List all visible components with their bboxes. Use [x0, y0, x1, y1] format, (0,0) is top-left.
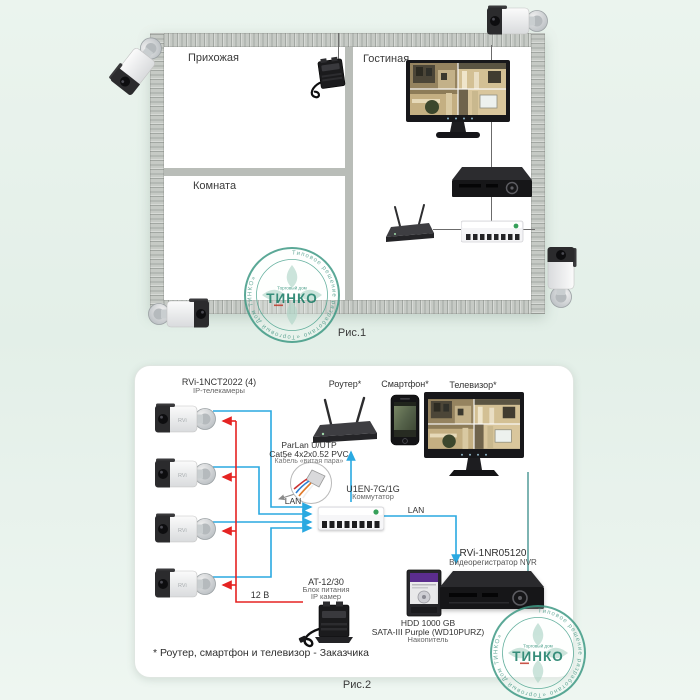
power-voltage-label: 12 В	[235, 590, 285, 601]
tinko-stamp: Типовое решение разработано «Торговый До…	[488, 603, 588, 700]
figure2-caption: Рис.2	[317, 679, 397, 692]
bullet-camera-icon	[484, 4, 548, 38]
hdd-icon	[406, 569, 442, 617]
hdd-sub-label: Накопитель	[368, 636, 488, 645]
nvr-sub-label: Видеорегистратор NVR	[433, 558, 553, 567]
tv-label: Телевизор*	[423, 380, 523, 391]
svg-text:RVi: RVi	[178, 528, 187, 534]
camera-bottom-right	[544, 244, 578, 308]
tv-icon	[424, 392, 524, 484]
figure2-panel: RVi RVi RVi RVi	[134, 365, 574, 678]
diagram-page: Прихожая Гостиная Комната	[0, 0, 700, 700]
wall-right	[531, 33, 545, 314]
lan-left-label: LAN	[273, 496, 313, 506]
ip-camera-2: RVi	[152, 457, 216, 491]
router-switch-line	[433, 229, 462, 230]
power-supply-icon	[300, 52, 352, 104]
camera-top-right	[484, 4, 548, 38]
ip-camera-4: RVi	[152, 567, 216, 601]
power-supply-icon	[295, 599, 353, 649]
svg-text:RVi: RVi	[178, 418, 187, 424]
bullet-camera-icon: RVi	[152, 457, 216, 491]
switch-icon	[461, 216, 525, 248]
wall-interior-horizontal	[164, 168, 345, 176]
bullet-camera-icon	[544, 244, 578, 308]
switch-icon	[318, 503, 384, 535]
footnote: * Роутер, смартфон и телевизор - Заказчи…	[153, 647, 369, 659]
switch-sub-label: Коммутатор	[323, 493, 423, 502]
stamp-brand: ТИНКО	[266, 291, 317, 306]
stamp-brand: ТИНКО	[512, 649, 563, 664]
room-label-room: Комната	[193, 180, 236, 192]
bullet-camera-icon: RVi	[152, 402, 216, 436]
nvr-icon	[452, 165, 532, 205]
ip-camera-3: RVi	[152, 512, 216, 546]
stamp-brand-top: Торговый дом	[523, 643, 553, 649]
svg-text:RVi: RVi	[178, 473, 187, 479]
ip-camera-1: RVi	[152, 402, 216, 436]
cable-sub-label: Кабель «витая пара»	[249, 458, 369, 466]
monitor-icon	[406, 60, 514, 140]
router-icon	[386, 204, 436, 244]
room-label-living: Гостиная	[363, 53, 409, 65]
room-label-hall: Прихожая	[188, 52, 239, 64]
figure1-floor-plan: Прихожая Гостиная Комната	[0, 0, 700, 360]
psu-sub2-label: IP камер	[276, 593, 376, 602]
smartphone-icon	[389, 394, 421, 446]
bullet-camera-icon	[148, 297, 212, 331]
camera-bottom-left	[148, 297, 212, 331]
bullet-camera-icon: RVi	[152, 567, 216, 601]
svg-text:RVi: RVi	[178, 583, 187, 589]
lan-right-label: LAN	[396, 505, 436, 515]
figure1-caption: Рис.1	[312, 327, 392, 340]
bullet-camera-icon: RVi	[152, 512, 216, 546]
wall-left	[150, 33, 164, 314]
cameras-sub-label: IP-телекамеры	[144, 387, 294, 396]
stamp-brand-top: Торговый дом	[277, 285, 307, 291]
router-icon	[313, 396, 379, 446]
